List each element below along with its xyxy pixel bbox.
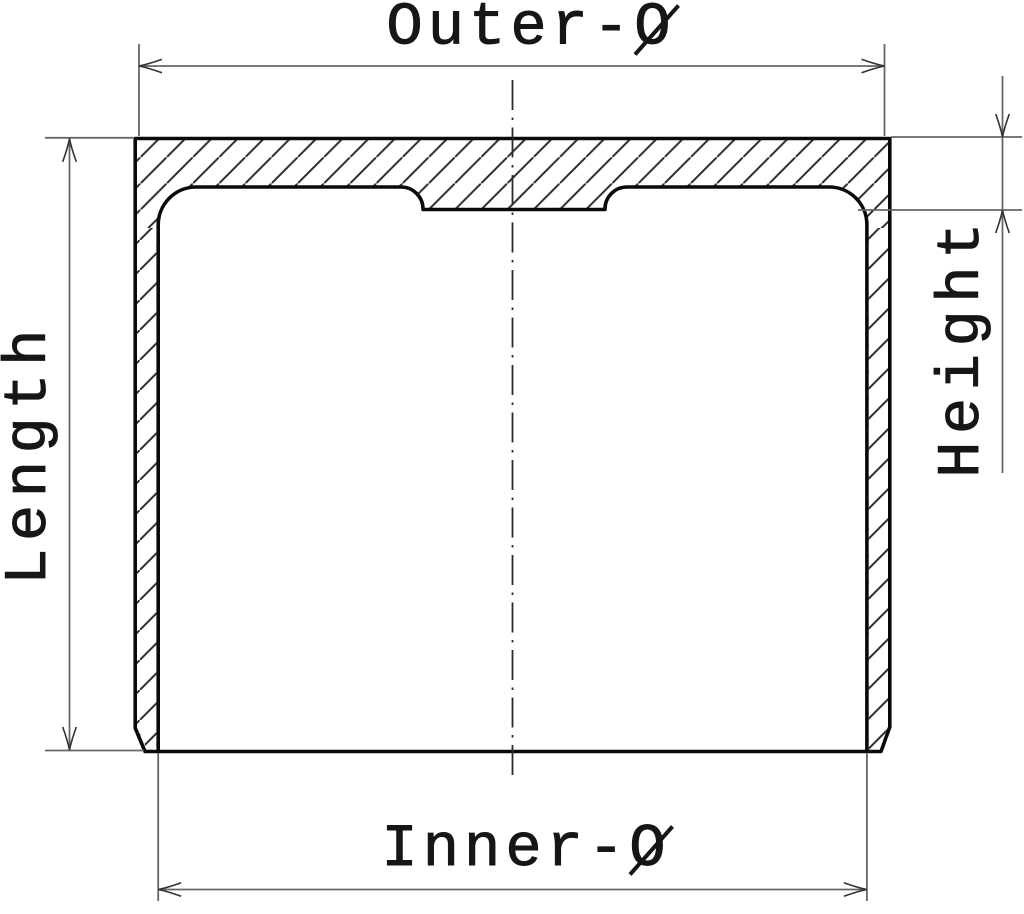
svg-text:Height: Height	[929, 215, 997, 478]
svg-text:Outer-O: Outer-O	[386, 0, 675, 63]
svg-text:Inner-O: Inner-O	[381, 816, 670, 884]
svg-text:Length: Length	[0, 322, 64, 585]
